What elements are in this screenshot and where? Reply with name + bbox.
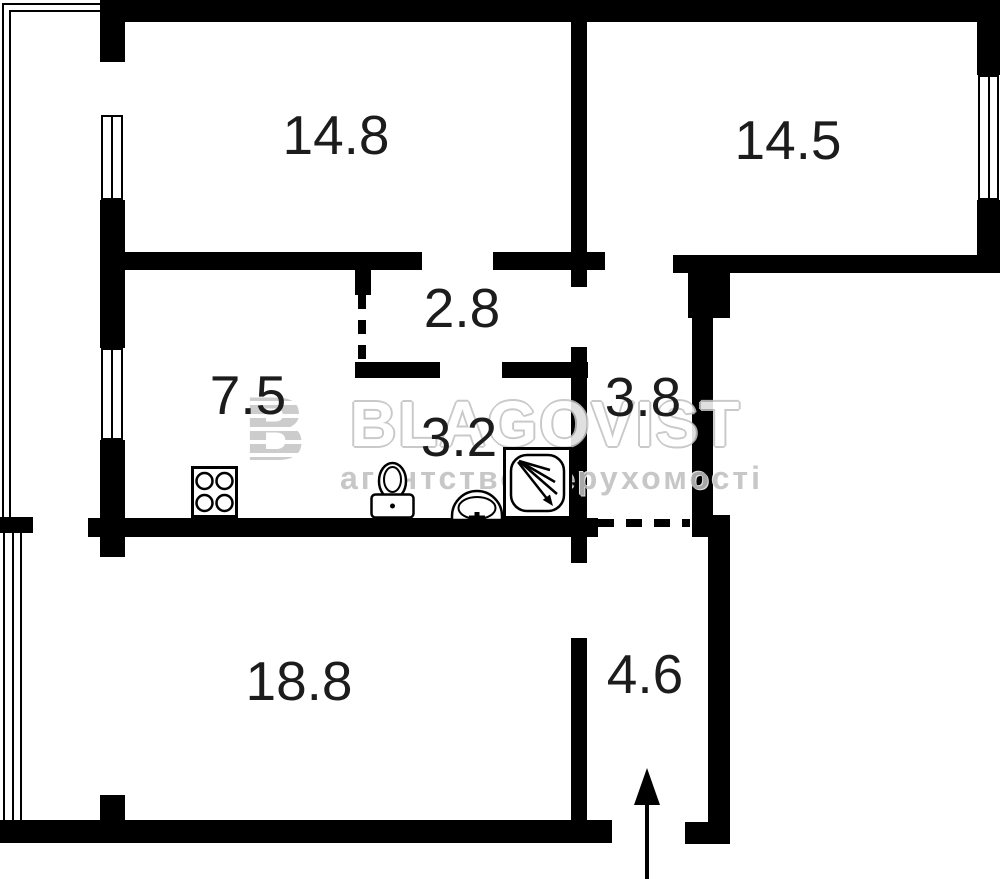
wall: [571, 638, 587, 820]
wall: [88, 518, 598, 537]
entrance-arrow-head-icon: [634, 768, 660, 805]
room-label-7-5: 7.5: [210, 363, 286, 427]
wall: [571, 537, 587, 563]
toilet-icon: [370, 461, 415, 519]
wall: [0, 820, 612, 843]
wall: [355, 362, 440, 378]
wall: [708, 515, 730, 844]
wall: [100, 440, 125, 557]
wall: [571, 22, 587, 287]
window: [101, 348, 123, 440]
wall: [355, 270, 371, 295]
wall: [977, 22, 1000, 75]
room-label-3-2: 3.2: [421, 405, 497, 469]
floor-plan: B BLAGOVIST агентство нерухомості 14.8 1…: [0, 0, 1000, 879]
dashed-opening: [358, 295, 366, 362]
wall: [502, 362, 588, 378]
stove-icon: [191, 466, 238, 518]
window: [3, 533, 22, 820]
wall: [0, 517, 33, 533]
watermark: B BLAGOVIST агентство нерухомості: [240, 392, 763, 497]
wall: [493, 252, 605, 270]
sink-icon: [450, 489, 504, 522]
wall: [123, 252, 422, 270]
window: [101, 115, 123, 200]
dashed-opening: [598, 519, 690, 527]
wall: [100, 0, 125, 62]
wall: [977, 200, 1000, 257]
entrance-arrow-icon: [645, 801, 649, 879]
room-label-18-8: 18.8: [245, 649, 352, 713]
wall: [100, 200, 125, 348]
room-label-2-8: 2.8: [424, 276, 500, 340]
wall: [103, 0, 1000, 22]
wall: [100, 795, 125, 820]
room-label-3-8: 3.8: [605, 365, 681, 429]
shower-icon: [503, 447, 572, 519]
window: [978, 75, 999, 200]
room-label-4-6: 4.6: [607, 642, 683, 706]
room-label-14-5: 14.5: [734, 108, 841, 172]
room-label-14-8: 14.8: [282, 103, 389, 167]
balcony-outline-inner: [9, 10, 100, 530]
